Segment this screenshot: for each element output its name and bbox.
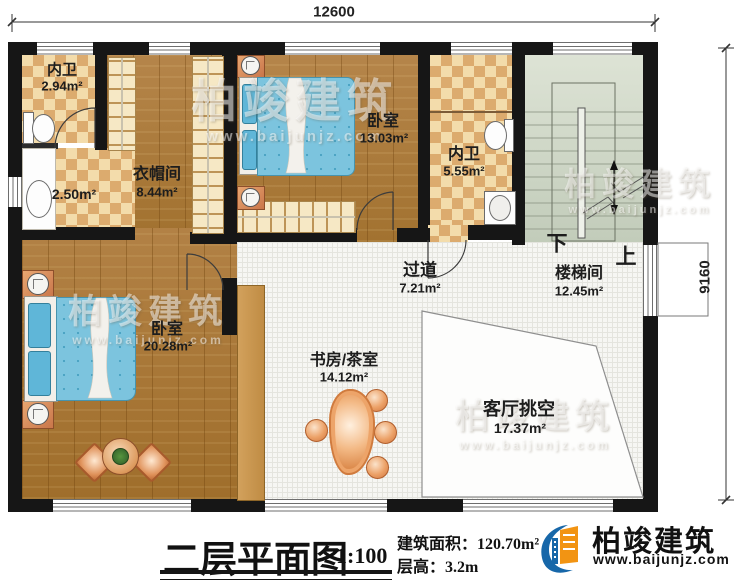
bedroom1-pillow-1 bbox=[242, 84, 257, 124]
bath1-area: 2.94m² bbox=[41, 80, 82, 93]
void-label: 客厅挑空 bbox=[483, 400, 555, 418]
void-area: 17.37m² bbox=[494, 421, 546, 435]
wall-right-2 bbox=[643, 316, 658, 512]
study-area: 14.12m² bbox=[320, 371, 368, 384]
study-stool-right bbox=[374, 421, 397, 444]
stair-up-label: 上 bbox=[616, 247, 637, 268]
bedroom1-area: 13.03m² bbox=[360, 132, 408, 145]
cloakroom-wardrobe-left bbox=[108, 57, 136, 151]
wall-bedroom1-bath2 bbox=[418, 55, 430, 225]
stair-down-label: 下 bbox=[547, 234, 568, 255]
cloakroom-area: 8.44m² bbox=[136, 186, 177, 199]
bath2-door-patch bbox=[428, 225, 468, 242]
bath2-partition bbox=[430, 111, 512, 113]
window-bottom-1 bbox=[53, 499, 191, 512]
bedroom2-lamp-bottom bbox=[27, 403, 49, 425]
bath2-sink bbox=[489, 195, 511, 221]
wall-bedroom2-corridor-b bbox=[222, 278, 237, 335]
wall-bottom-3 bbox=[387, 499, 463, 512]
wall-cloak-bedroom1 bbox=[222, 55, 237, 244]
bedroom2-pillow-2 bbox=[28, 351, 51, 396]
bedroom2-pillow-1 bbox=[28, 303, 51, 348]
stairwell-floor bbox=[525, 55, 643, 242]
bedroom2-bed bbox=[56, 297, 136, 401]
window-top-1 bbox=[37, 42, 93, 55]
bedroom1-label: 卧室 bbox=[367, 114, 399, 130]
toilet2-bowl bbox=[484, 121, 507, 150]
brand-logo-icon bbox=[536, 518, 588, 574]
corridor-label: 过道 bbox=[403, 262, 437, 279]
bedroom1-pillow-2 bbox=[242, 130, 257, 170]
bath1-label: 内卫 bbox=[47, 63, 77, 78]
wall-bath1-cloak bbox=[95, 55, 107, 150]
cloakroom-label: 衣帽间 bbox=[133, 167, 181, 183]
bedroom1-lamp-bottom bbox=[241, 188, 260, 207]
study-label: 书房/茶室 bbox=[310, 353, 378, 369]
stairwell-label: 楼梯间 bbox=[555, 266, 603, 282]
building-area: 建筑面积：120.70m² bbox=[397, 530, 539, 554]
bedroom1-lamp-top bbox=[241, 56, 260, 75]
wash-sink bbox=[26, 180, 52, 218]
study-stool-bottom bbox=[366, 456, 389, 479]
window-top-3 bbox=[285, 42, 380, 55]
title-underline bbox=[160, 570, 392, 580]
study-stool-left bbox=[305, 419, 328, 442]
wall-top-4 bbox=[380, 42, 451, 55]
bath2-label: 内卫 bbox=[448, 147, 480, 163]
stairwell-area: 12.45m² bbox=[555, 285, 603, 298]
window-bottom-2 bbox=[265, 499, 387, 512]
wall-top-2 bbox=[93, 42, 149, 55]
corridor-area: 7.21m² bbox=[399, 282, 440, 295]
window-bottom-3 bbox=[463, 499, 613, 512]
table-plant bbox=[112, 448, 129, 465]
window-left bbox=[8, 177, 22, 207]
brand-url: www.baijunjz.com bbox=[593, 551, 730, 567]
plan-scale: 1:100 bbox=[336, 543, 387, 569]
floor-height: 层高：3.2m bbox=[397, 553, 478, 577]
window-top-4 bbox=[451, 42, 512, 55]
dimension-width: 12600 bbox=[313, 4, 355, 21]
cloakroom-wardrobe-right bbox=[192, 56, 224, 234]
wall-top-3 bbox=[190, 42, 285, 55]
bedroom2-lamp-top bbox=[27, 273, 49, 295]
toilet1-bowl bbox=[32, 114, 55, 143]
bedroom2-area: 20.28m² bbox=[144, 340, 192, 353]
bedroom1-bed bbox=[257, 77, 355, 176]
wall-left-1 bbox=[8, 42, 22, 177]
window-right bbox=[643, 245, 658, 316]
bedroom2-label: 卧室 bbox=[151, 322, 183, 338]
wall-left-2 bbox=[8, 207, 22, 512]
floor-plan-canvas: 柏竣建筑 www.baijunjz.com 柏竣建筑 www.baijunjz.… bbox=[0, 0, 750, 580]
bath2-area: 5.55m² bbox=[443, 165, 484, 178]
study-cabinet bbox=[237, 285, 265, 501]
wall-right-1 bbox=[643, 42, 658, 245]
window-top-2 bbox=[149, 42, 190, 55]
wall-bath2-corridor-a bbox=[418, 225, 428, 240]
wash-area: 2.50m² bbox=[52, 187, 96, 201]
dimension-depth: 9160 bbox=[697, 260, 714, 293]
window-top-5 bbox=[553, 42, 632, 55]
